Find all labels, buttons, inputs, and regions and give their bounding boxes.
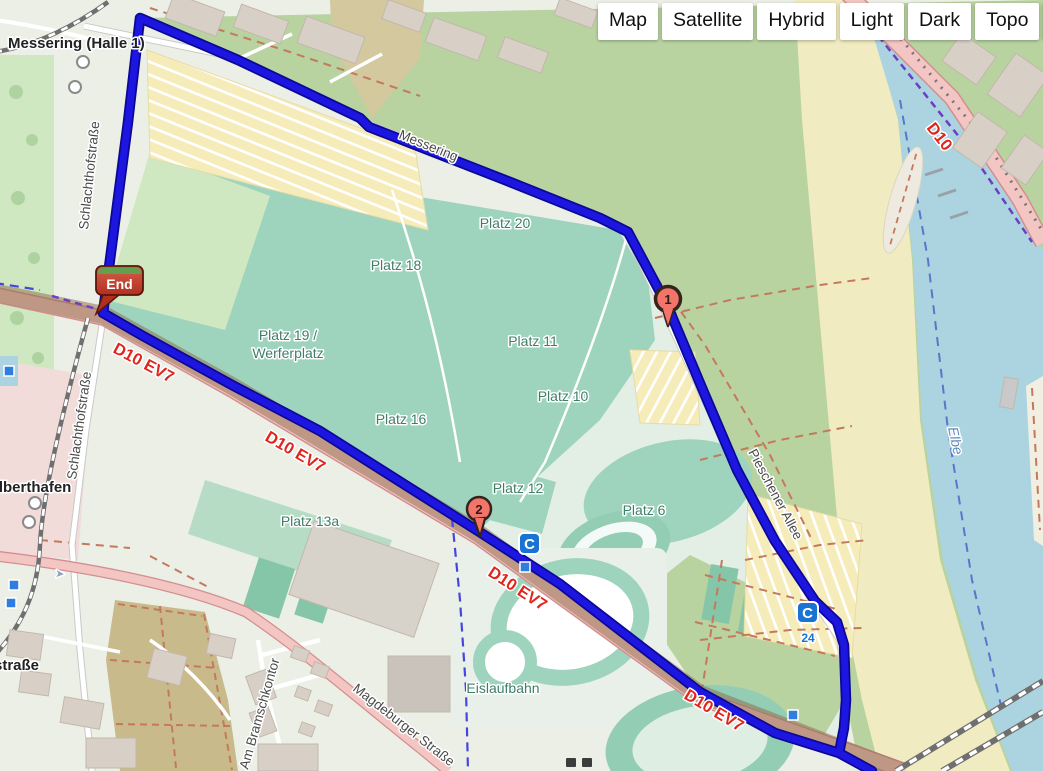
- label-platz18: Platz 18: [371, 257, 422, 273]
- label-strasse-partial: straße: [0, 657, 39, 674]
- oneway-arrow-icon: ➤: [55, 568, 65, 581]
- svg-text:2: 2: [475, 502, 482, 517]
- label-platz20: Platz 20: [480, 215, 531, 231]
- label-platz19-line1: Platz 19 /: [259, 327, 317, 343]
- transit-icon-c1: C: [519, 533, 540, 554]
- layer-button-satellite[interactable]: Satellite: [662, 3, 753, 40]
- label-eislaufbahn: Eislaufbahn: [466, 680, 539, 696]
- map-viewport[interactable]: ➤: [0, 0, 1043, 771]
- layer-button-topo[interactable]: Topo: [975, 3, 1039, 40]
- label-alberthafen: Alberthafen: [0, 479, 71, 496]
- layer-button-dark[interactable]: Dark: [908, 3, 971, 40]
- svg-text:C: C: [524, 536, 535, 553]
- svg-text:End: End: [106, 276, 132, 292]
- label-platz19-line2: Werferplatz: [252, 345, 323, 361]
- label-platz16: Platz 16: [376, 411, 427, 427]
- svg-text:C: C: [802, 605, 813, 622]
- svg-text:1: 1: [664, 292, 671, 307]
- transit-badge-24: 24: [801, 631, 815, 645]
- label-platz6: Platz 6: [623, 502, 666, 518]
- label-messering-halle: Messering (Halle 1): [8, 35, 145, 52]
- label-platz12: Platz 12: [493, 480, 544, 496]
- label-platz10: Platz 10: [538, 388, 589, 404]
- label-platz11: Platz 11: [508, 333, 558, 349]
- layer-button-light[interactable]: Light: [840, 3, 904, 40]
- layer-button-hybrid[interactable]: Hybrid: [757, 3, 835, 40]
- label-platz13a: Platz 13a: [281, 513, 340, 529]
- west-green-strip: [0, 55, 54, 395]
- layer-switcher: Map Satellite Hybrid Light Dark Topo C: [598, 3, 1043, 40]
- layer-button-map[interactable]: Map: [598, 3, 658, 40]
- map-canvas[interactable]: ➤: [0, 0, 1043, 771]
